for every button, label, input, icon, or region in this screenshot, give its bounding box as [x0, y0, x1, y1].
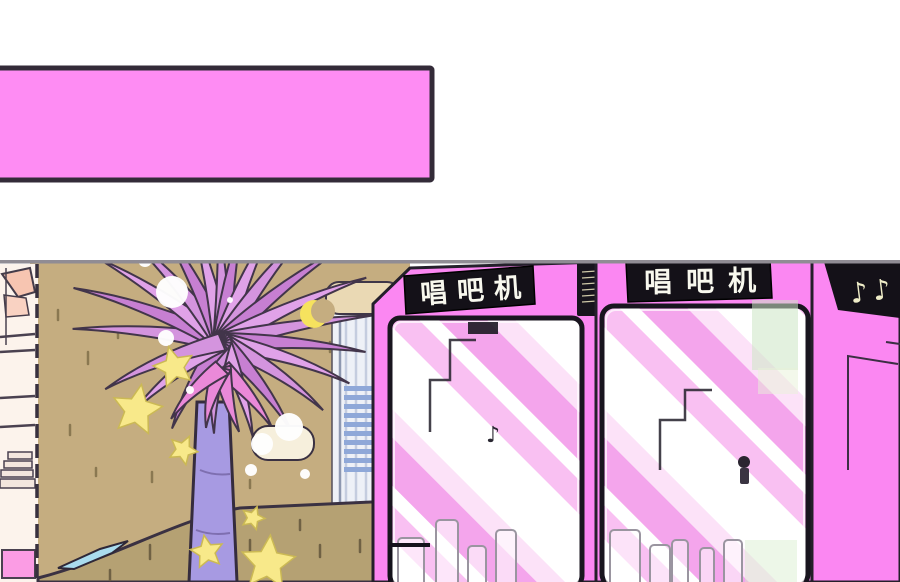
- bokeh-dot: [158, 330, 174, 346]
- bokeh-dot: [156, 276, 188, 308]
- panel-top-rule: [0, 260, 900, 264]
- bokeh-dot: [186, 386, 194, 394]
- bokeh-dot: [245, 464, 257, 476]
- bokeh-dot: [275, 413, 303, 441]
- bokeh-dot: [251, 433, 273, 455]
- caption-box-rect: [0, 68, 432, 180]
- booth-side-panel: ♪♪: [812, 262, 900, 582]
- panel-canvas: 唱吧机 ♪: [0, 0, 900, 582]
- comic-page: 唱吧机 ♪: [0, 0, 900, 582]
- music-notes-label: ♪♪: [848, 272, 897, 310]
- city-facade: [0, 264, 38, 582]
- facade-awning-lower: [4, 295, 29, 317]
- bokeh-dot: [227, 297, 233, 303]
- karaoke-booth-1: 唱吧机 ♪: [373, 262, 600, 582]
- glass-note-glyph: ♪: [486, 423, 500, 448]
- scene-panel: 唱吧机 ♪: [0, 214, 900, 582]
- caption-box: [0, 68, 432, 180]
- facade-pink-storefront: [2, 550, 35, 578]
- booth2-sign-label: 唱吧机: [644, 264, 771, 299]
- karaoke-booth-2: 唱吧机: [596, 260, 816, 582]
- bokeh-dot: [300, 469, 310, 479]
